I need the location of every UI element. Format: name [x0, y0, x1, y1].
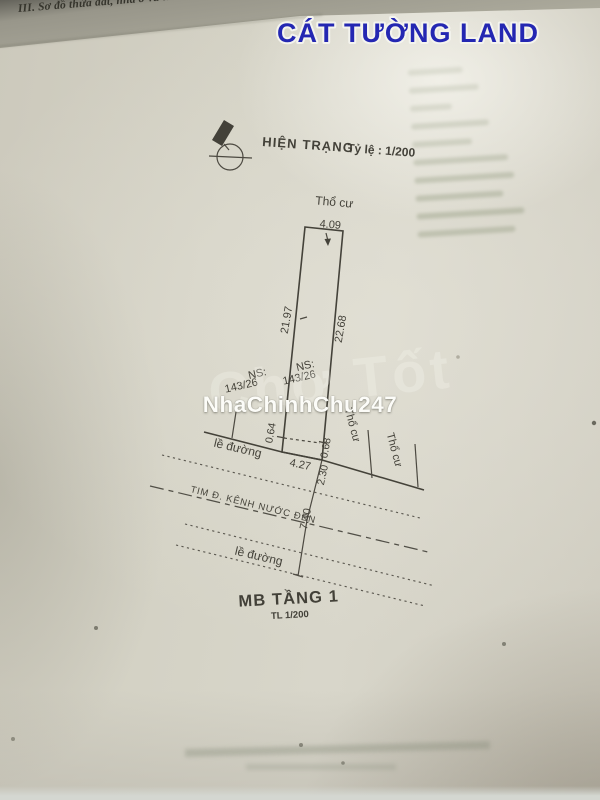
right-neighbor-boundary-1: [368, 430, 372, 478]
label-road-edge-2: lề đường: [234, 544, 285, 569]
caption-scale: TL 1/200: [271, 609, 309, 622]
parcel-boundary: [282, 227, 343, 460]
north-arrow-icon: [212, 120, 234, 146]
dim-left-length: 21.97: [279, 305, 296, 334]
arrow-down-icon: [325, 239, 332, 247]
setback-dashed-line: [284, 438, 320, 443]
caption-title: MB TẦNG 1: [238, 586, 340, 610]
survey-document-photo: III. Sơ đồ thửa đất, nhà ở và tài sản kh…: [0, 0, 600, 800]
label-hien-trang: HIỆN TRẠNG: [262, 134, 355, 155]
dim-to-centerline: 2.30: [315, 464, 331, 487]
dim-right-offset: 0.68: [318, 437, 333, 459]
photo-bottom-edge: [0, 786, 600, 800]
bleed-through-row: [246, 764, 396, 770]
dim-bottom-width: 4.27: [288, 457, 311, 473]
label-scale: Tỷ lệ : 1/200: [347, 141, 416, 160]
dim-top-width: 4.09: [319, 218, 341, 232]
road-edge-dotted-2: [185, 524, 435, 586]
label-road-edge-1: lề đường: [213, 436, 264, 461]
nhachinhchu-watermark: NhaChinhChu247: [0, 392, 600, 418]
dim-left-offset: 0.64: [263, 422, 278, 444]
label-land-type-top: Thổ cư: [315, 193, 354, 210]
right-neighbor-boundary-2: [415, 444, 418, 487]
left-edge-tick: [300, 317, 307, 319]
paper-specks: [0, 0, 2, 2]
north-indicator: [209, 120, 252, 170]
label-canal-centerline: TIM Đ. KÊNH NƯỚC ĐEN: [189, 484, 317, 526]
label-land-type-right-2: Thổ cư: [384, 432, 405, 469]
